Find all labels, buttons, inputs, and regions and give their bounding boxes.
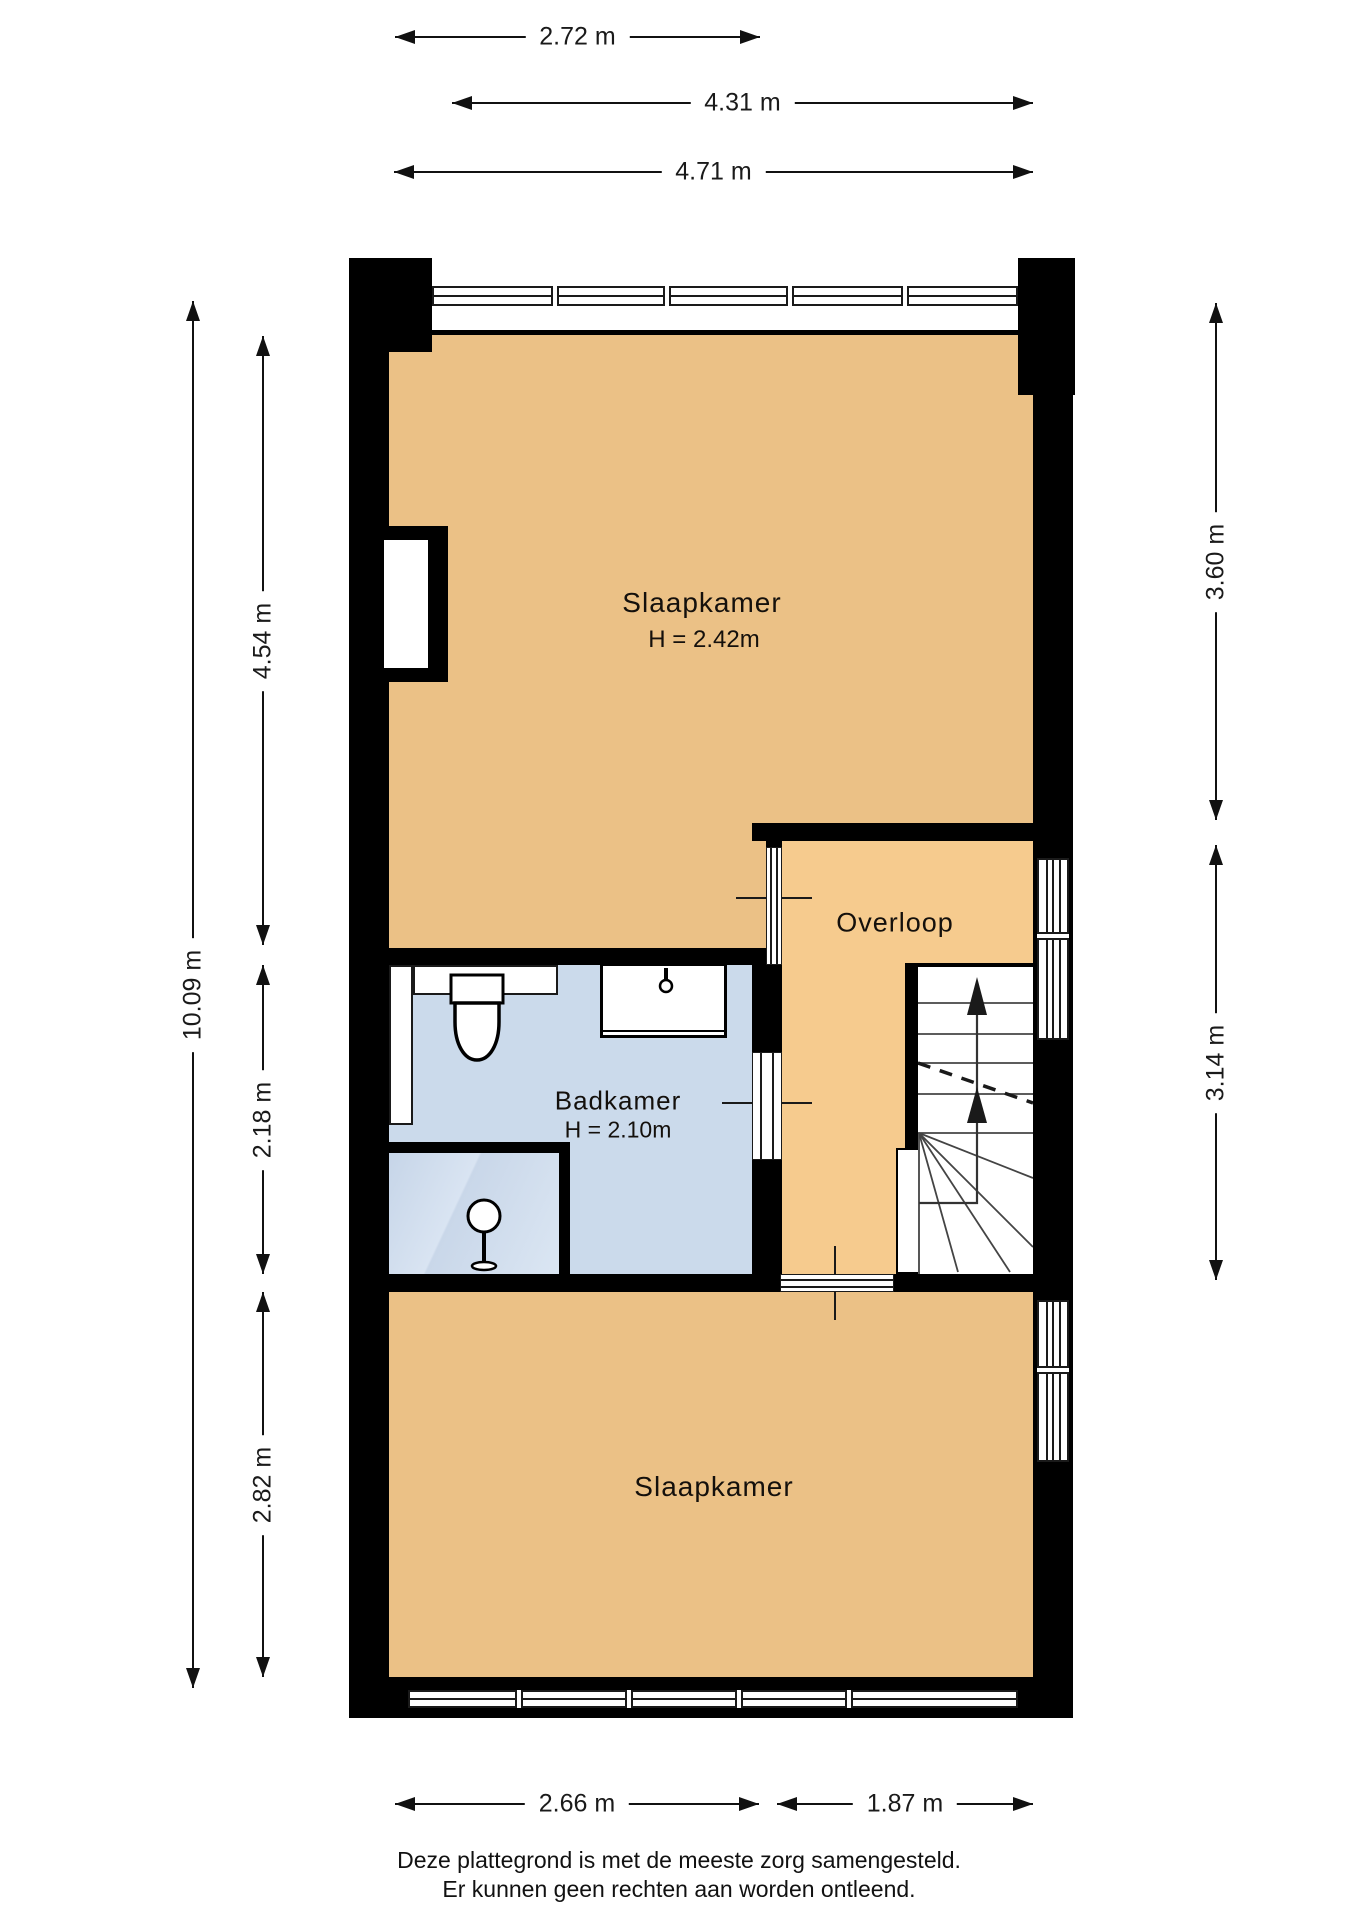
wall-middle-bottom	[349, 1274, 1073, 1292]
disclaimer-line-2: Er kunnen geen rechten aan worden ontlee…	[397, 1875, 961, 1904]
dimension-label: 4.54 m	[247, 590, 280, 690]
door-tick	[722, 1102, 752, 1104]
shower-drain-icon	[456, 1190, 512, 1274]
dimension-left-bedroom-bottom: 2.82 m	[262, 1292, 264, 1677]
dimension-right-landing: 3.14 m	[1215, 845, 1217, 1280]
disclaimer-line-1: Deze plattegrond is met de meeste zorg s…	[397, 1846, 961, 1875]
door-bedroom-top	[766, 847, 782, 965]
wall-corner-top-right	[1018, 258, 1075, 395]
window-top-sill-edge	[432, 330, 1018, 335]
floor-landing-upper	[782, 841, 1033, 963]
wall-corner-top-left	[349, 258, 432, 352]
ceiling-height-bathroom: H = 2.10m	[565, 1117, 672, 1144]
dimension-label: 2.18 m	[247, 1069, 280, 1169]
dimension-label: 2.72 m	[525, 21, 629, 54]
dimension-top-window: 2.72 m	[395, 36, 760, 38]
stairs	[918, 963, 1033, 1274]
door-tick	[834, 1246, 836, 1274]
dimension-label: 2.66 m	[525, 1788, 629, 1821]
dimension-label: 2.82 m	[247, 1434, 280, 1534]
toilet-icon	[444, 972, 510, 1068]
door-bathroom	[752, 1052, 782, 1160]
ceiling-height-bedroom-top: H = 2.42m	[648, 626, 759, 654]
wall-niche	[370, 526, 448, 682]
bathroom-duct	[389, 965, 413, 1125]
wall-shower-top	[389, 1142, 570, 1153]
door-tick	[834, 1292, 836, 1320]
top-facade-zone	[432, 258, 1018, 335]
door-bedroom-bottom	[780, 1274, 894, 1292]
floor-bedroom-top-lower	[389, 823, 766, 948]
dimension-right-bedroom-top: 3.60 m	[1215, 303, 1217, 820]
dimension-label: 3.14 m	[1200, 1012, 1233, 1112]
wall-stairwell-left	[905, 963, 918, 1148]
dimension-left-bedroom-top: 4.54 m	[262, 336, 264, 945]
window-bedroom-bottom-right	[1037, 1300, 1069, 1462]
room-label-bedroom-bottom: Slaapkamer	[634, 1471, 793, 1503]
dimension-left-bathroom: 2.18 m	[262, 965, 264, 1274]
dimension-label: 4.71 m	[661, 156, 765, 189]
disclaimer: Deze plattegrond is met de meeste zorg s…	[397, 1846, 961, 1904]
floor-bedroom-top	[389, 335, 1033, 823]
floor-landing-lower	[782, 963, 905, 1274]
floor-plan: Slaapkamer H = 2.42m Badkamer H = 2.10m …	[0, 0, 1358, 1920]
faucet-icon	[652, 966, 680, 998]
dimension-top-total: 4.71 m	[394, 171, 1033, 173]
wall-landing-top	[752, 823, 1073, 841]
wall-left	[349, 258, 389, 1718]
door-tick	[782, 1102, 812, 1104]
dimension-top-inner: 4.31 m	[452, 102, 1033, 104]
dimension-label: 4.31 m	[690, 87, 794, 120]
dimension-bottom-right: 1.87 m	[777, 1803, 1033, 1805]
room-label-landing: Overloop	[836, 908, 954, 939]
room-label-bathroom: Badkamer	[555, 1086, 682, 1117]
dimension-bottom-left: 2.66 m	[395, 1803, 759, 1805]
room-label-bedroom-top: Slaapkamer	[622, 587, 781, 619]
dimension-label: 1.87 m	[853, 1788, 957, 1821]
wall-shower-right	[559, 1142, 570, 1274]
window-bottom	[408, 1690, 1018, 1708]
dimension-label: 10.09 m	[177, 937, 210, 1051]
stairwell-left-opening	[896, 1148, 918, 1274]
window-top	[432, 286, 1018, 306]
door-tick	[782, 897, 812, 899]
door-tick	[736, 897, 766, 899]
dimension-label: 3.60 m	[1200, 511, 1233, 611]
dimension-left-total: 10.09 m	[192, 301, 194, 1688]
window-landing-right	[1037, 858, 1069, 1040]
